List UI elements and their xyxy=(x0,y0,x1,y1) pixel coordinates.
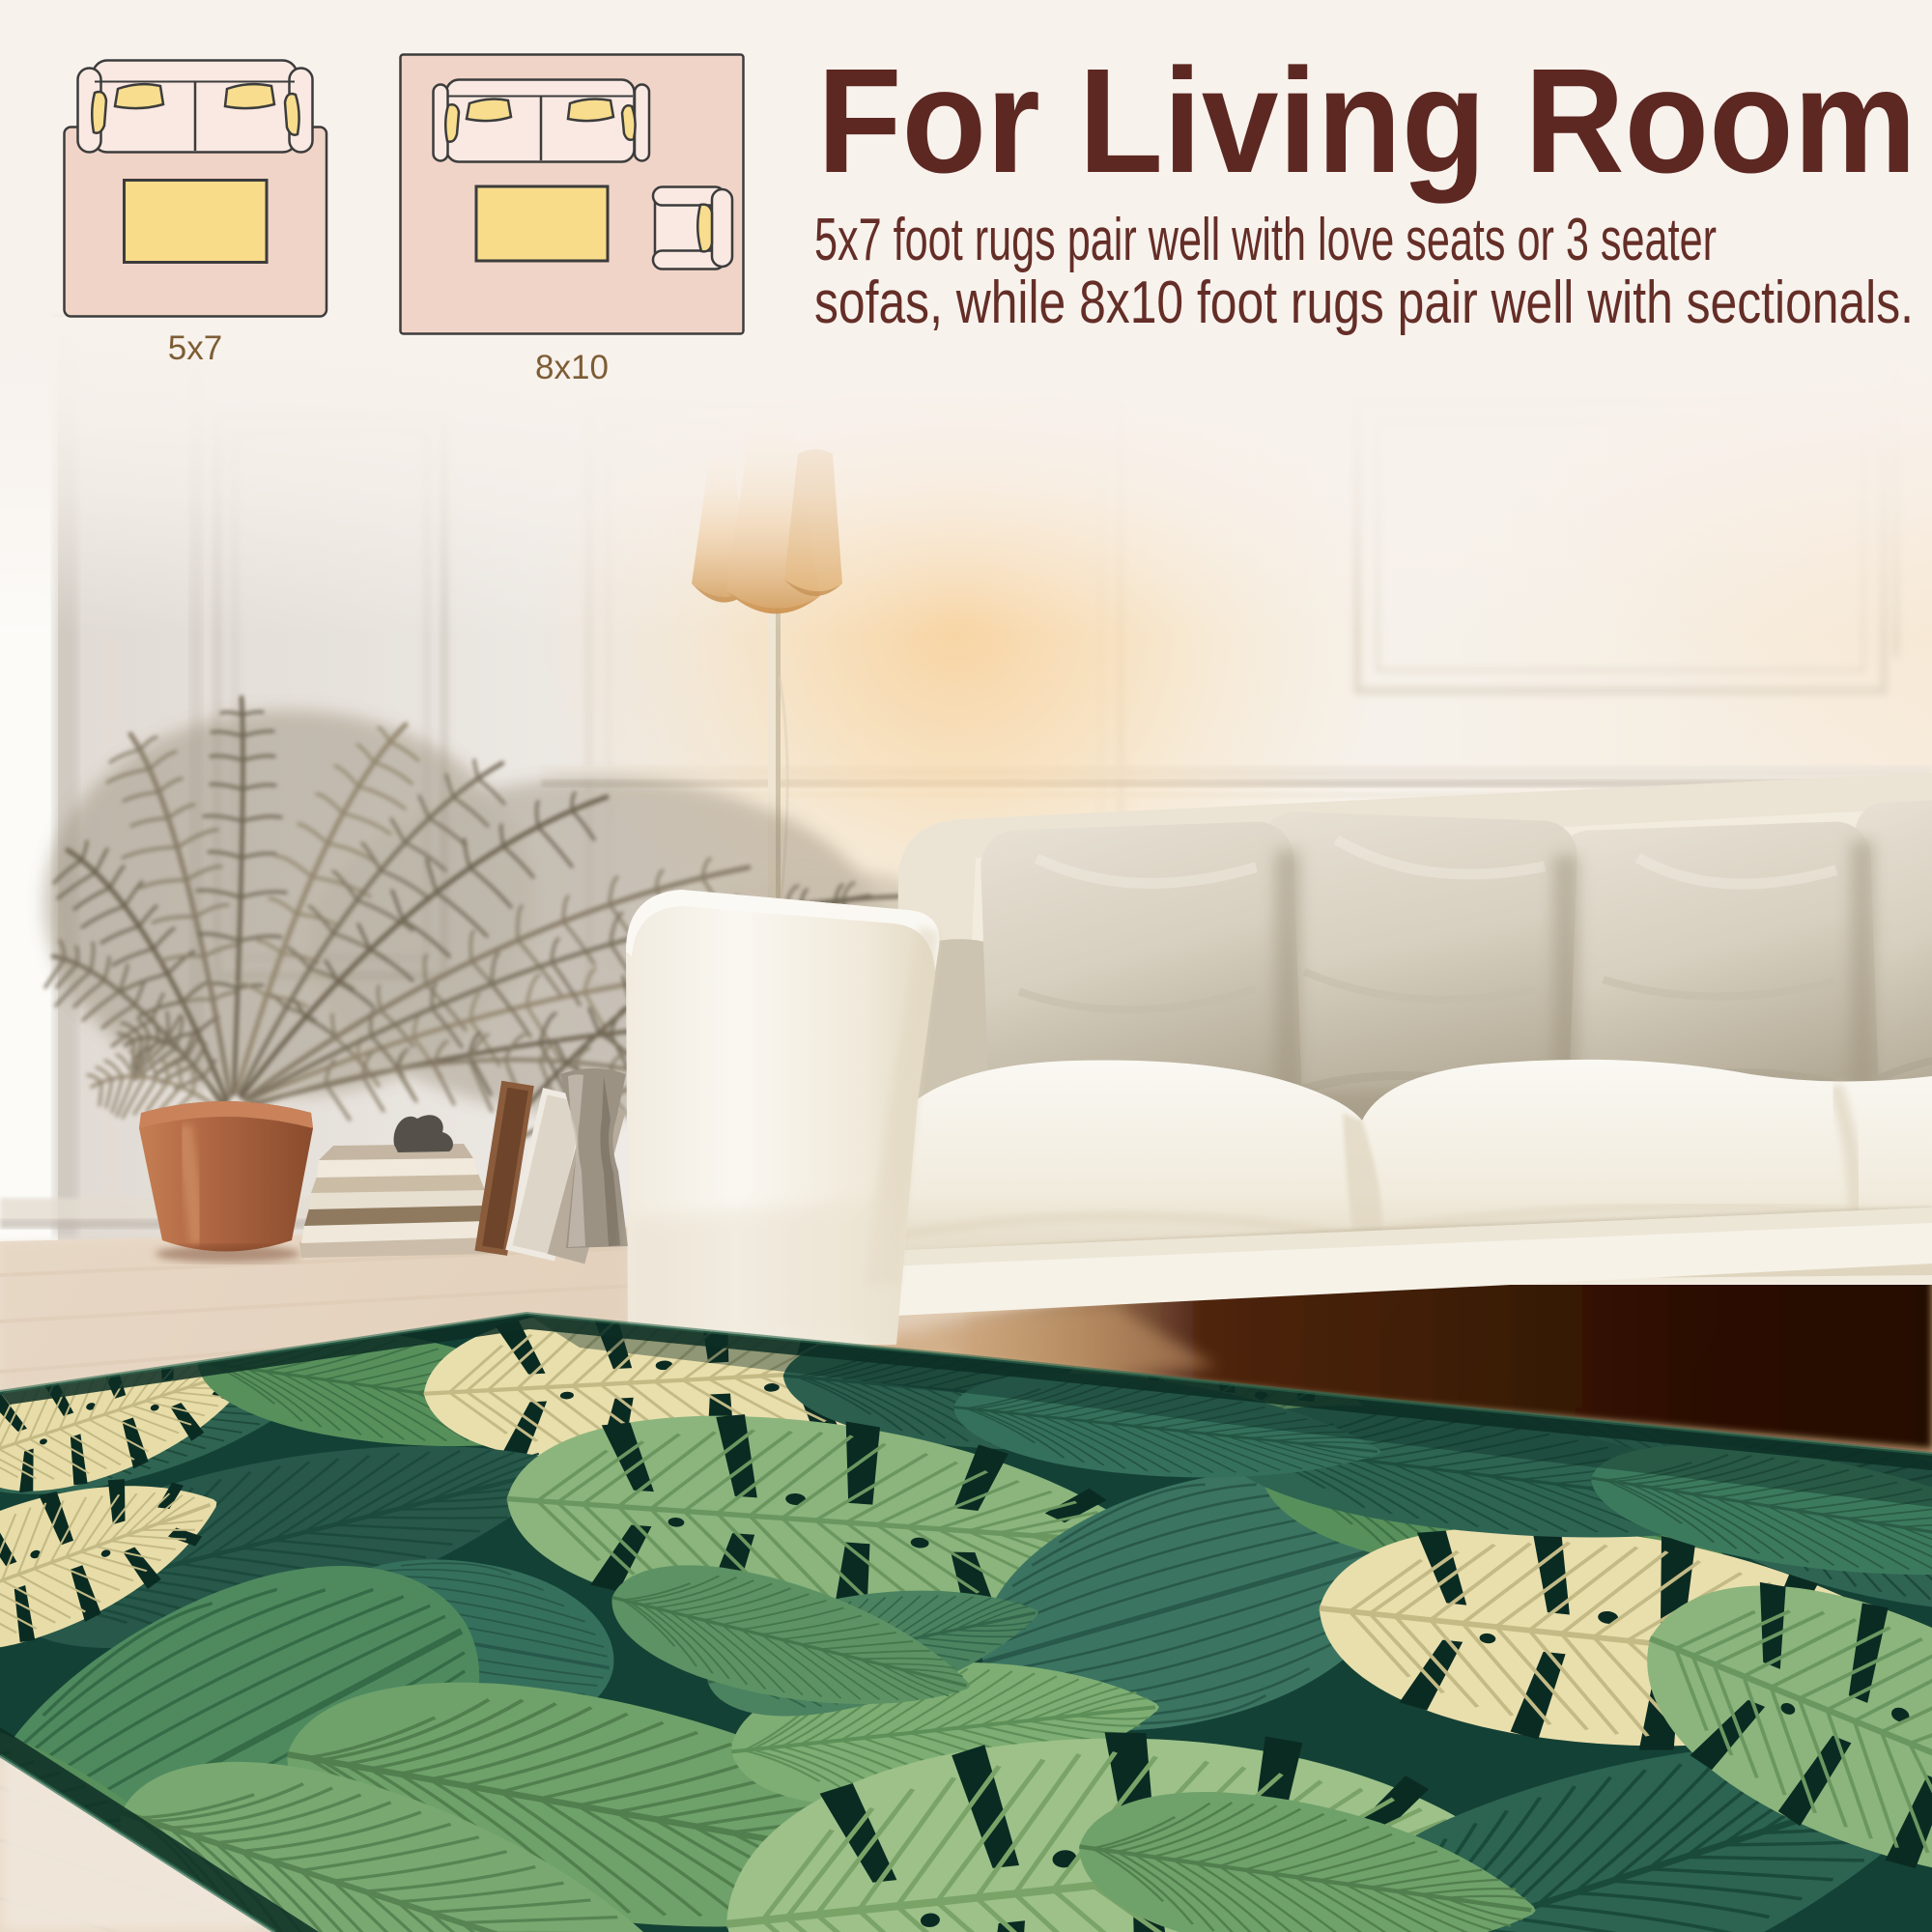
svg-text:For Living Room: For Living Room xyxy=(817,38,1917,204)
svg-text:8x10: 8x10 xyxy=(535,349,609,386)
svg-text:5x7: 5x7 xyxy=(168,329,222,367)
svg-text:5x7 foot rugs pair well with l: 5x7 foot rugs pair well with love seats … xyxy=(814,207,1717,273)
svg-text:sofas, while 8x10 foot rugs pa: sofas, while 8x10 foot rugs pair well wi… xyxy=(814,270,1914,336)
